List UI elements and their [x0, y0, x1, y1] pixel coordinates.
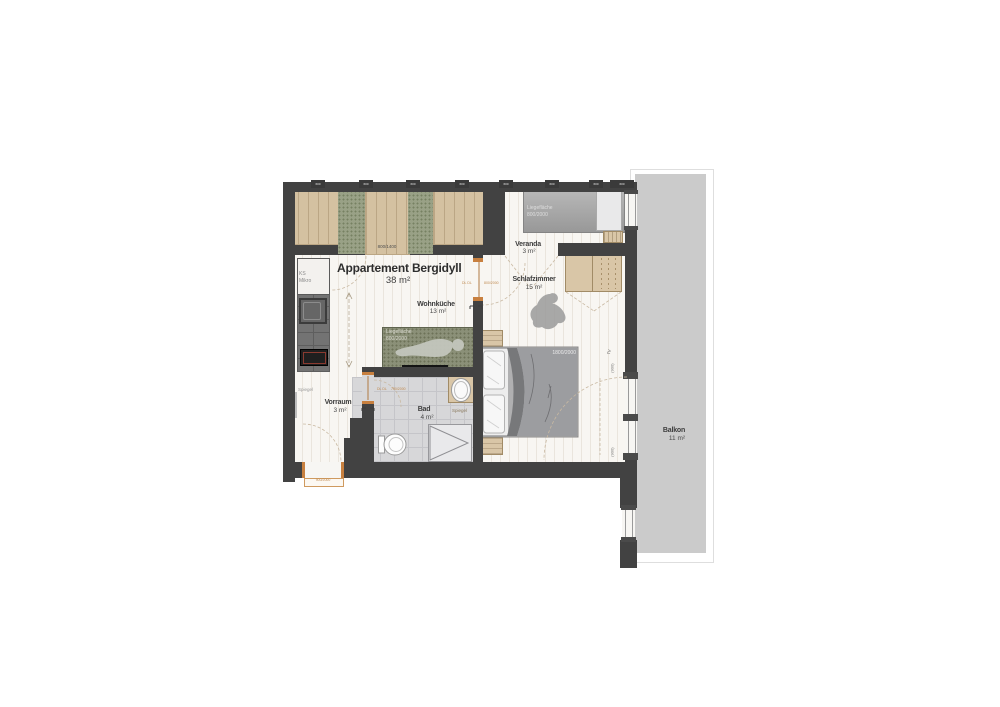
- kitchen-sink-basin: [303, 302, 321, 320]
- floorplan-canvas: 800/1400 Liegefläche 800/2000 Liegefläch…: [0, 0, 1000, 707]
- roof-window-icon: 600: [545, 180, 559, 188]
- bath-door-opening[interactable]: [362, 375, 374, 401]
- bath-door-hinge-label: DL DL: [377, 388, 387, 392]
- roof-window-icon: 600: [359, 180, 373, 188]
- bedroom-door-frame-bottom: [473, 297, 483, 301]
- balcony-floor: [635, 174, 706, 553]
- person-silhouette-bedroom: [528, 291, 570, 333]
- roof-window-icon: 600: [311, 180, 325, 188]
- roof-window-icon: 600: [499, 180, 513, 188]
- bed-size-label: 1800/2000: [536, 351, 576, 356]
- daybed-label-2: 800/2000: [527, 213, 548, 218]
- balcony-door-block-mid: [623, 414, 638, 421]
- balcony-door-block-top: [623, 372, 638, 379]
- tv-label-living: TV: [438, 359, 443, 363]
- wall-balcony-column-lower: [620, 540, 637, 568]
- deck-lounger-size-label: 800/1400: [366, 245, 408, 250]
- entrance-door-frame-left: [302, 462, 305, 478]
- sofa-label-2: 800/2000: [386, 337, 407, 342]
- balcony-door-width-bottom: (900): [611, 447, 615, 456]
- window-width-label: 600: [363, 182, 368, 186]
- room-label-vorraum: Vorraum: [308, 399, 368, 406]
- room-area-wohnkueche: 13 m²: [408, 309, 468, 316]
- wall-balcony-column-upper: [620, 478, 637, 508]
- room-area-veranda: 3 m²: [499, 249, 559, 256]
- daybed-mattress-end: [596, 190, 622, 231]
- wall-bottom: [341, 462, 637, 478]
- wall-interior-vertical: [473, 298, 483, 464]
- double-bed: [479, 346, 579, 438]
- side-window-lower-block-bottom: [621, 537, 636, 542]
- room-area-bad: 4 m²: [397, 415, 457, 422]
- window-width-label: 600: [315, 182, 320, 186]
- balcony-door-block-bottom: [623, 453, 638, 460]
- bedroom-door-frame-top: [473, 258, 483, 262]
- window-width-label: 600: [459, 182, 464, 186]
- bedroom-door-opening[interactable]: [473, 262, 483, 297]
- entrance-door-frame-right: [341, 462, 344, 478]
- side-window-lower-frame: [625, 508, 633, 540]
- window-width-label: 600: [549, 182, 554, 186]
- wall-bath-left-3: [344, 438, 374, 464]
- side-window-lower-block-top: [621, 505, 636, 510]
- room-area-balkon: 11 m²: [647, 436, 707, 443]
- roof-window-icon: 600: [610, 180, 634, 188]
- kitchen-cabinet-label-2: Mikro: [299, 279, 311, 284]
- wall-left: [283, 182, 295, 482]
- deck-green-strip-2: [408, 186, 433, 254]
- entrance-door-size-label: 900/2000: [308, 479, 338, 483]
- wall-living-bath: [368, 367, 473, 377]
- deck-green-strip-1: [338, 186, 365, 254]
- bath-door-size-label: 700/2000: [391, 388, 406, 392]
- room-label-balkon: Balkon: [644, 427, 704, 434]
- balcony-door-width-top: (900): [611, 363, 615, 372]
- entrance-door-opening[interactable]: [305, 462, 341, 478]
- veranda-step: [603, 231, 623, 243]
- window-width-label: 600: [410, 182, 415, 186]
- room-label-bad: Bad: [394, 406, 454, 413]
- veranda-window-block-bottom: [624, 226, 638, 230]
- roof-window-icon: 600: [589, 180, 603, 188]
- roof-window-icon: 600: [406, 180, 420, 188]
- plan-title: Appartement Bergidyll: [337, 262, 459, 275]
- kitchen-cabinet-label-1: KS: [299, 272, 306, 277]
- wall-bath-left-2: [350, 418, 374, 438]
- bedroom-door-hinge-label: DL DL: [462, 282, 472, 286]
- room-area-vorraum: 3 m²: [310, 408, 370, 415]
- room-label-schlafzimmer: Schlafzimmer: [504, 276, 564, 283]
- veranda-window-block-top: [624, 190, 638, 194]
- wardrobe-rail-dashes: [596, 258, 620, 289]
- vorraum-mirror: [295, 392, 297, 418]
- kitchen-cooktop-inner: [303, 352, 326, 364]
- wardrobe-divider: [592, 256, 593, 291]
- roof-window-icon: 600: [455, 180, 469, 188]
- plan-total-area: 38 m²: [368, 276, 428, 286]
- bedroom-door-size-label: 800/2000: [484, 282, 499, 286]
- window-width-label: 600: [503, 182, 508, 186]
- veranda-window-frame: [628, 192, 636, 228]
- window-width-label: 600: [619, 182, 624, 186]
- bath-door-frame-top: [362, 372, 374, 375]
- room-area-schlafzimmer: 15 m²: [504, 285, 564, 292]
- mirror-label-vorraum: Spiegel: [298, 388, 313, 393]
- mirror-label-bad: Spiegel: [452, 409, 467, 414]
- wall-right-mid: [625, 228, 637, 373]
- sofa-label-1: Liegefläche: [386, 330, 412, 335]
- deck-panel-right: [433, 189, 485, 245]
- window-width-label: 600: [593, 182, 598, 186]
- daybed-label-1: Liegefläche: [527, 206, 553, 211]
